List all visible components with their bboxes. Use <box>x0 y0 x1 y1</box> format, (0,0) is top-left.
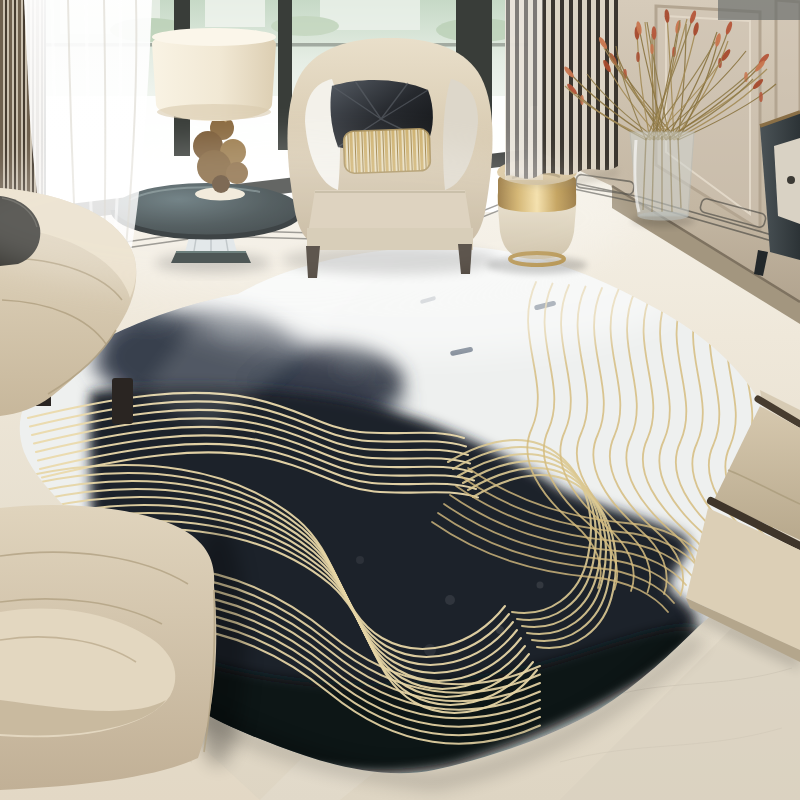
cabinet-drawer <box>774 138 800 224</box>
curved-lounge <box>0 505 246 790</box>
scene-canvas <box>0 0 800 800</box>
cabinet-knob <box>787 176 795 184</box>
curtain-sheer-veil <box>505 0 543 180</box>
flower-plume <box>650 44 654 54</box>
lamp-shade-top <box>152 28 276 46</box>
flower-plume <box>759 92 763 102</box>
flower-plume <box>636 52 640 62</box>
striped-curtain-right <box>505 0 618 187</box>
wall-corner-shadow <box>718 0 800 20</box>
sofa-leg-b <box>112 378 133 424</box>
living-room-photo <box>0 0 800 800</box>
